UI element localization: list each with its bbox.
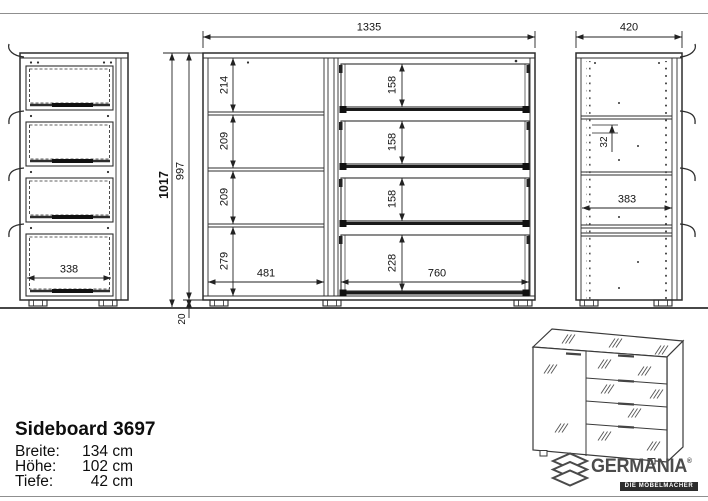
- product-name: Sideboard 3697: [15, 419, 155, 441]
- spec-row-tiefe: Tiefe: 42 cm: [15, 474, 155, 489]
- drawer-box-side-3: [26, 178, 113, 222]
- registered-mark: ®: [687, 458, 692, 465]
- spec-value-tiefe: 42 cm: [77, 474, 133, 489]
- drawer-front-4: [339, 235, 530, 297]
- dim-front-width: 1335: [357, 23, 381, 34]
- perspective-illustration: [533, 329, 683, 464]
- spec-label-tiefe: Tiefe:: [15, 474, 77, 489]
- spec-label-breite: Breite:: [15, 444, 77, 459]
- drawer-box-side-2: [26, 122, 113, 166]
- spec-label-hoehe: Höhe:: [15, 459, 77, 474]
- dim-side-drawer-depth: 338: [60, 265, 78, 276]
- dim-side-inner-depth: 383: [618, 195, 636, 206]
- right-side-view: [576, 31, 695, 306]
- drawer-front-1: [339, 64, 530, 113]
- technical-drawing-sheet: 1335 420 1017 997 20 214 209 209 279 481…: [0, 0, 708, 501]
- dim-shelf-4: 279: [220, 252, 231, 270]
- dim-shelf-3: 209: [220, 188, 231, 206]
- feet-front-view: [210, 300, 532, 306]
- dim-drawer-width: 760: [428, 269, 446, 280]
- drawer-box-side-1: [26, 66, 113, 110]
- shelf-lines-side: [581, 116, 672, 236]
- dim-plinth-height: 20: [178, 313, 188, 324]
- dim-shelf-width: 481: [257, 269, 275, 280]
- title-block: Sideboard 3697 Breite: 134 cm Höhe: 102 …: [15, 419, 155, 489]
- dim-body-height: 997: [176, 162, 187, 180]
- dim-side-width: 420: [620, 23, 638, 34]
- shelves: [208, 112, 324, 227]
- dim-drawer-2: 158: [388, 133, 399, 151]
- dim-drawer-1: 158: [388, 76, 399, 94]
- spec-value-breite: 134 cm: [77, 444, 133, 459]
- brand-tagline: DIE MÖBELMACHER: [620, 482, 698, 491]
- dim-hole-pitch: 32: [600, 136, 610, 147]
- feet-left-view: [29, 300, 117, 306]
- germania-logo-icon: [553, 454, 587, 486]
- dim-shelf-1: 214: [220, 76, 231, 94]
- front-view: [203, 31, 535, 306]
- runner-hooks-left: [9, 44, 24, 237]
- dim-drawer-3: 158: [388, 190, 399, 208]
- center-partition: [324, 58, 338, 296]
- shelf-hole-rows: [587, 61, 669, 299]
- spec-value-hoehe: 102 cm: [77, 459, 133, 474]
- dim-drawer-4: 228: [388, 254, 399, 272]
- drawer-front-2: [339, 121, 530, 170]
- drawer-front-3: [339, 178, 530, 227]
- dim-total-height: 1017: [158, 171, 171, 199]
- spec-row-hoehe: Höhe: 102 cm: [15, 459, 155, 474]
- feet-right-view: [580, 300, 672, 306]
- spec-row-breite: Breite: 134 cm: [15, 444, 155, 459]
- brand-name: GERMANIA: [591, 456, 687, 477]
- dim-shelf-2: 209: [220, 132, 231, 150]
- germania-wordmark: GERMANIA®: [591, 457, 692, 476]
